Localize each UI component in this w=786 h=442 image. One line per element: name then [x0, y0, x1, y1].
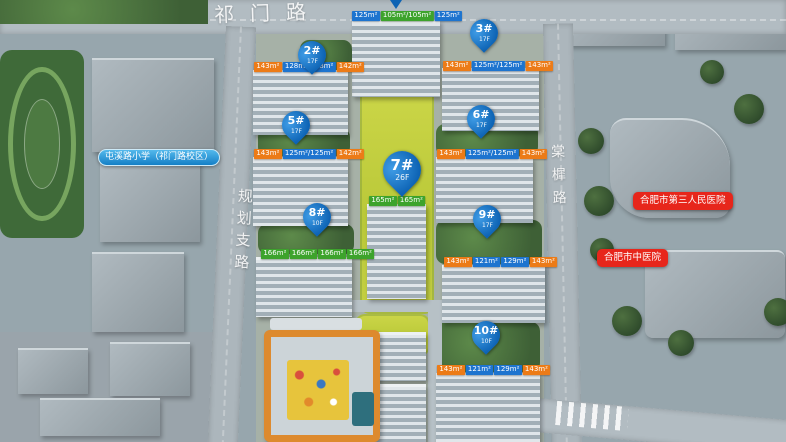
building-8 [256, 257, 352, 317]
tree [734, 94, 764, 124]
unit-area-tag: 143m² [437, 149, 465, 159]
unit-area-tag: 143m² [254, 62, 282, 72]
tree [578, 128, 604, 154]
service-building [374, 384, 426, 442]
tree [612, 306, 642, 336]
pin-content: 10#10F [472, 321, 500, 349]
pin-building-number: 2# [304, 45, 321, 57]
sports-field [0, 50, 84, 238]
pin-floor-count: 17F [482, 222, 493, 228]
pin-floor-count: 26F [395, 174, 409, 182]
building-pin-3: 3#17F [464, 13, 504, 53]
city-building [40, 398, 160, 436]
building-10 [436, 373, 540, 442]
area-tag-row-9: 143m²121m²129m²143m² [444, 257, 557, 267]
pin-content: 3#17F [470, 19, 498, 47]
city-building [110, 342, 190, 396]
building-7 [367, 204, 426, 299]
building-pin-9: 9#17F [467, 199, 507, 239]
unit-area-tag: 142m² [336, 62, 364, 72]
service-building [374, 332, 426, 381]
unit-area-tag: 166m² [261, 249, 289, 259]
area-tag-row-7: 165m²165m² [369, 196, 425, 206]
unit-area-tag: 125m²/125m² [466, 149, 519, 159]
pin-floor-count: 17F [479, 36, 490, 42]
unit-area-tag: 121m² [473, 257, 501, 267]
unit-area-tag: 125m²/125m² [283, 149, 336, 159]
area-tag-row-3: 143m²125m²/125m²143m² [443, 61, 553, 71]
unit-area-tag: 143m² [523, 365, 551, 375]
building-5 [253, 157, 348, 226]
area-tag-row-5: 143m²125m²/125m²142m² [254, 149, 364, 159]
building-pin-7: 7#26F [375, 143, 429, 197]
building-1 [352, 20, 440, 97]
building-pin-2: 2#17F [292, 35, 332, 75]
building-pin-5: 5#17F [276, 105, 316, 145]
unit-area-tag: 129m² [494, 365, 522, 375]
kindergarten-pool [352, 392, 374, 426]
kindergarten-canopy [270, 318, 362, 330]
area-tag-row-6: 143m²125m²/125m²143m² [437, 149, 547, 159]
unit-area-tag: 166m² [347, 249, 375, 259]
building-pin-10: 10#10F [466, 315, 506, 355]
pin-floor-count: 17F [307, 58, 318, 64]
pin-building-number: 9# [479, 209, 496, 221]
building-pin-6: 6#17F [461, 99, 501, 139]
road-label-tangxi: 棠樨路 [547, 144, 569, 214]
road-label-planned-branch: 规划支路 [231, 188, 257, 277]
tree [668, 330, 694, 356]
unit-area-tag: 125m² [434, 11, 462, 21]
pin-floor-count: 17F [476, 122, 487, 128]
unit-area-tag: 143m² [530, 257, 558, 267]
unit-area-tag: 143m² [519, 149, 547, 159]
kindergarten-playground [287, 360, 349, 420]
pin-building-number: 6# [473, 109, 490, 121]
unit-area-tag: 143m² [437, 365, 465, 375]
area-tag-row-1: 125m²105m²/105m²125m² [352, 11, 462, 21]
tree [584, 186, 614, 216]
tree [764, 298, 786, 326]
pin-tip-offscreen [390, 0, 402, 9]
pin-building-number: 7# [390, 157, 413, 174]
unit-area-tag: 129m² [501, 257, 529, 267]
masterplan-aerial-rendering: 祁门路 规划支路 棠樨路 屯溪路小学（祁门路校区） 合肥市第三人民医院 合肥市中… [0, 0, 786, 442]
unit-area-tag: 165m² [369, 196, 397, 206]
hospital-label-tcm: 合肥市中医院 [597, 249, 668, 267]
pin-building-number: 10# [474, 325, 499, 337]
unit-area-tag: 105m²/105m² [381, 11, 434, 21]
school-building [92, 58, 214, 152]
pin-floor-count: 10F [312, 220, 323, 226]
tree [700, 60, 724, 84]
pin-content: 6#17F [467, 105, 495, 133]
unit-area-tag: 165m² [398, 196, 426, 206]
pin-content: 9#17F [473, 205, 501, 233]
unit-area-tag: 125m² [352, 11, 380, 21]
pin-building-number: 8# [309, 207, 326, 219]
area-tag-row-8: 166m²166m²166m²166m² [261, 249, 374, 259]
pin-floor-count: 17F [291, 128, 302, 134]
unit-area-tag: 121m² [466, 365, 494, 375]
area-tag-row-10: 143m²121m²129m²143m² [437, 365, 550, 375]
unit-area-tag: 142m² [336, 149, 364, 159]
building-9 [442, 265, 545, 323]
tree-band-top [0, 0, 208, 24]
unit-area-tag: 143m² [525, 61, 553, 71]
unit-area-tag: 143m² [443, 61, 471, 71]
pin-floor-count: 10F [481, 338, 492, 344]
unit-area-tag: 143m² [254, 149, 282, 159]
pin-content: 7#26F [383, 151, 421, 189]
unit-area-tag: 143m² [444, 257, 472, 267]
road-label-qimen: 祁门路 [214, 0, 323, 28]
unit-area-tag: 166m² [318, 249, 346, 259]
pin-building-number: 5# [288, 115, 305, 127]
building-pin-8: 8#10F [297, 197, 337, 237]
school-building [92, 252, 184, 332]
unit-area-tag: 166m² [290, 249, 318, 259]
pin-building-number: 3# [476, 23, 493, 35]
hospital-label-third-peoples: 合肥市第三人民医院 [633, 192, 733, 210]
road-tangxi [543, 23, 582, 442]
school-building [100, 162, 200, 242]
pin-content: 8#10F [303, 203, 331, 231]
unit-area-tag: 125m²/125m² [472, 61, 525, 71]
pin-content: 5#17F [282, 111, 310, 139]
school-label: 屯溪路小学（祁门路校区） [98, 149, 220, 166]
city-building [18, 348, 88, 394]
pin-content: 2#17F [298, 41, 326, 69]
